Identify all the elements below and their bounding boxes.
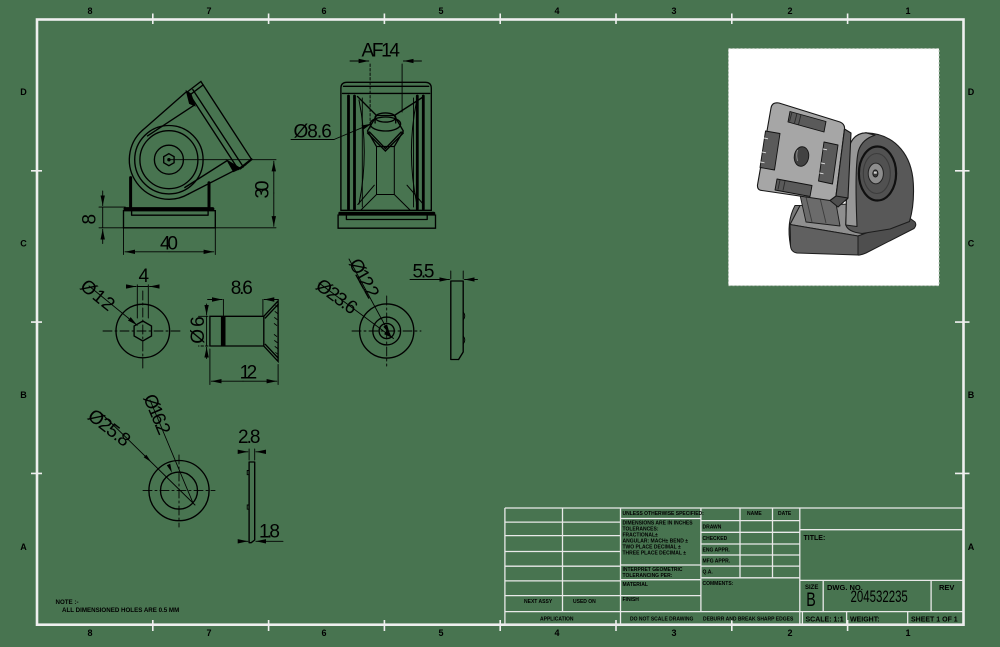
svg-text:A: A [968,542,975,552]
svg-text:3: 3 [671,6,676,16]
svg-text:NAME: NAME [747,511,762,517]
svg-text:WEIGHT:: WEIGHT: [850,617,880,624]
svg-text:REV: REV [939,583,954,592]
svg-text:8: 8 [87,628,92,638]
svg-text:D: D [20,87,27,97]
svg-text:4: 4 [554,628,559,638]
svg-text:2.8: 2.8 [238,427,261,448]
svg-text:4: 4 [139,266,150,287]
svg-text:8: 8 [80,214,101,225]
svg-text:3: 3 [671,628,676,638]
svg-text:Ø6: Ø6 [188,316,209,344]
svg-text:UNLESS OTHERWISE SPECIFIED:: UNLESS OTHERWISE SPECIFIED: [623,511,705,517]
svg-text:TITLE:: TITLE: [804,535,826,542]
svg-text:NOTE :-: NOTE :- [56,599,79,606]
svg-text:7: 7 [206,628,211,638]
svg-text:NEXT ASSY: NEXT ASSY [524,599,553,605]
svg-text:D: D [968,87,975,97]
svg-text:AF14: AF14 [362,40,401,61]
svg-text:8.6: 8.6 [231,278,253,299]
svg-text:ENG APPR.: ENG APPR. [703,548,731,554]
svg-text:1: 1 [905,6,910,16]
svg-text:DEBURR AND BREAK SHARP EDGES: DEBURR AND BREAK SHARP EDGES [703,617,794,623]
svg-text:DRAWN: DRAWN [703,525,722,531]
svg-text:SHEET 1 OF 1: SHEET 1 OF 1 [911,617,958,624]
svg-text:SCALE: 1:1: SCALE: 1:1 [806,617,844,624]
svg-text:4: 4 [554,6,559,16]
svg-text:FINISH: FINISH [623,597,640,603]
svg-text:1.8: 1.8 [259,522,280,543]
svg-text:B: B [20,390,27,400]
svg-text:6: 6 [321,628,326,638]
svg-text:APPLICATION: APPLICATION [540,617,574,623]
svg-text:30: 30 [252,181,273,199]
svg-text:204532235: 204532235 [851,588,908,606]
svg-text:2: 2 [787,628,792,638]
svg-text:7: 7 [206,6,211,16]
svg-text:5: 5 [438,6,443,16]
svg-text:C: C [968,239,975,249]
svg-text:MFG APPR.: MFG APPR. [703,559,731,565]
svg-text:THREE PLACE DECIMAL ±: THREE PLACE DECIMAL ± [623,551,687,557]
svg-text:DO NOT SCALE DRAWING: DO NOT SCALE DRAWING [630,617,693,623]
svg-text:MATERIAL: MATERIAL [623,582,648,588]
svg-text:DATE: DATE [778,511,792,517]
svg-text:8: 8 [87,6,92,16]
svg-text:12: 12 [240,363,258,384]
svg-text:5.5: 5.5 [413,262,435,283]
svg-text:CHECKED: CHECKED [703,536,728,542]
svg-text:COMMENTS:: COMMENTS: [703,581,734,587]
svg-text:B: B [806,590,816,611]
svg-text:6: 6 [321,6,326,16]
svg-text:ALL DIMENSIONED HOLES ARE 0.5: ALL DIMENSIONED HOLES ARE 0.5 MM [62,607,179,614]
svg-text:40: 40 [160,234,178,255]
svg-text:TOLERANCING PER:: TOLERANCING PER: [623,573,673,579]
svg-text:B: B [968,390,975,400]
svg-text:1: 1 [905,628,910,638]
svg-text:Ø8.6: Ø8.6 [294,121,332,142]
svg-text:2: 2 [787,6,792,16]
svg-text:5: 5 [438,628,443,638]
svg-text:C: C [20,239,27,249]
svg-text:USED ON: USED ON [573,599,596,605]
svg-text:A: A [20,542,27,552]
svg-text:Q.A.: Q.A. [703,570,714,576]
